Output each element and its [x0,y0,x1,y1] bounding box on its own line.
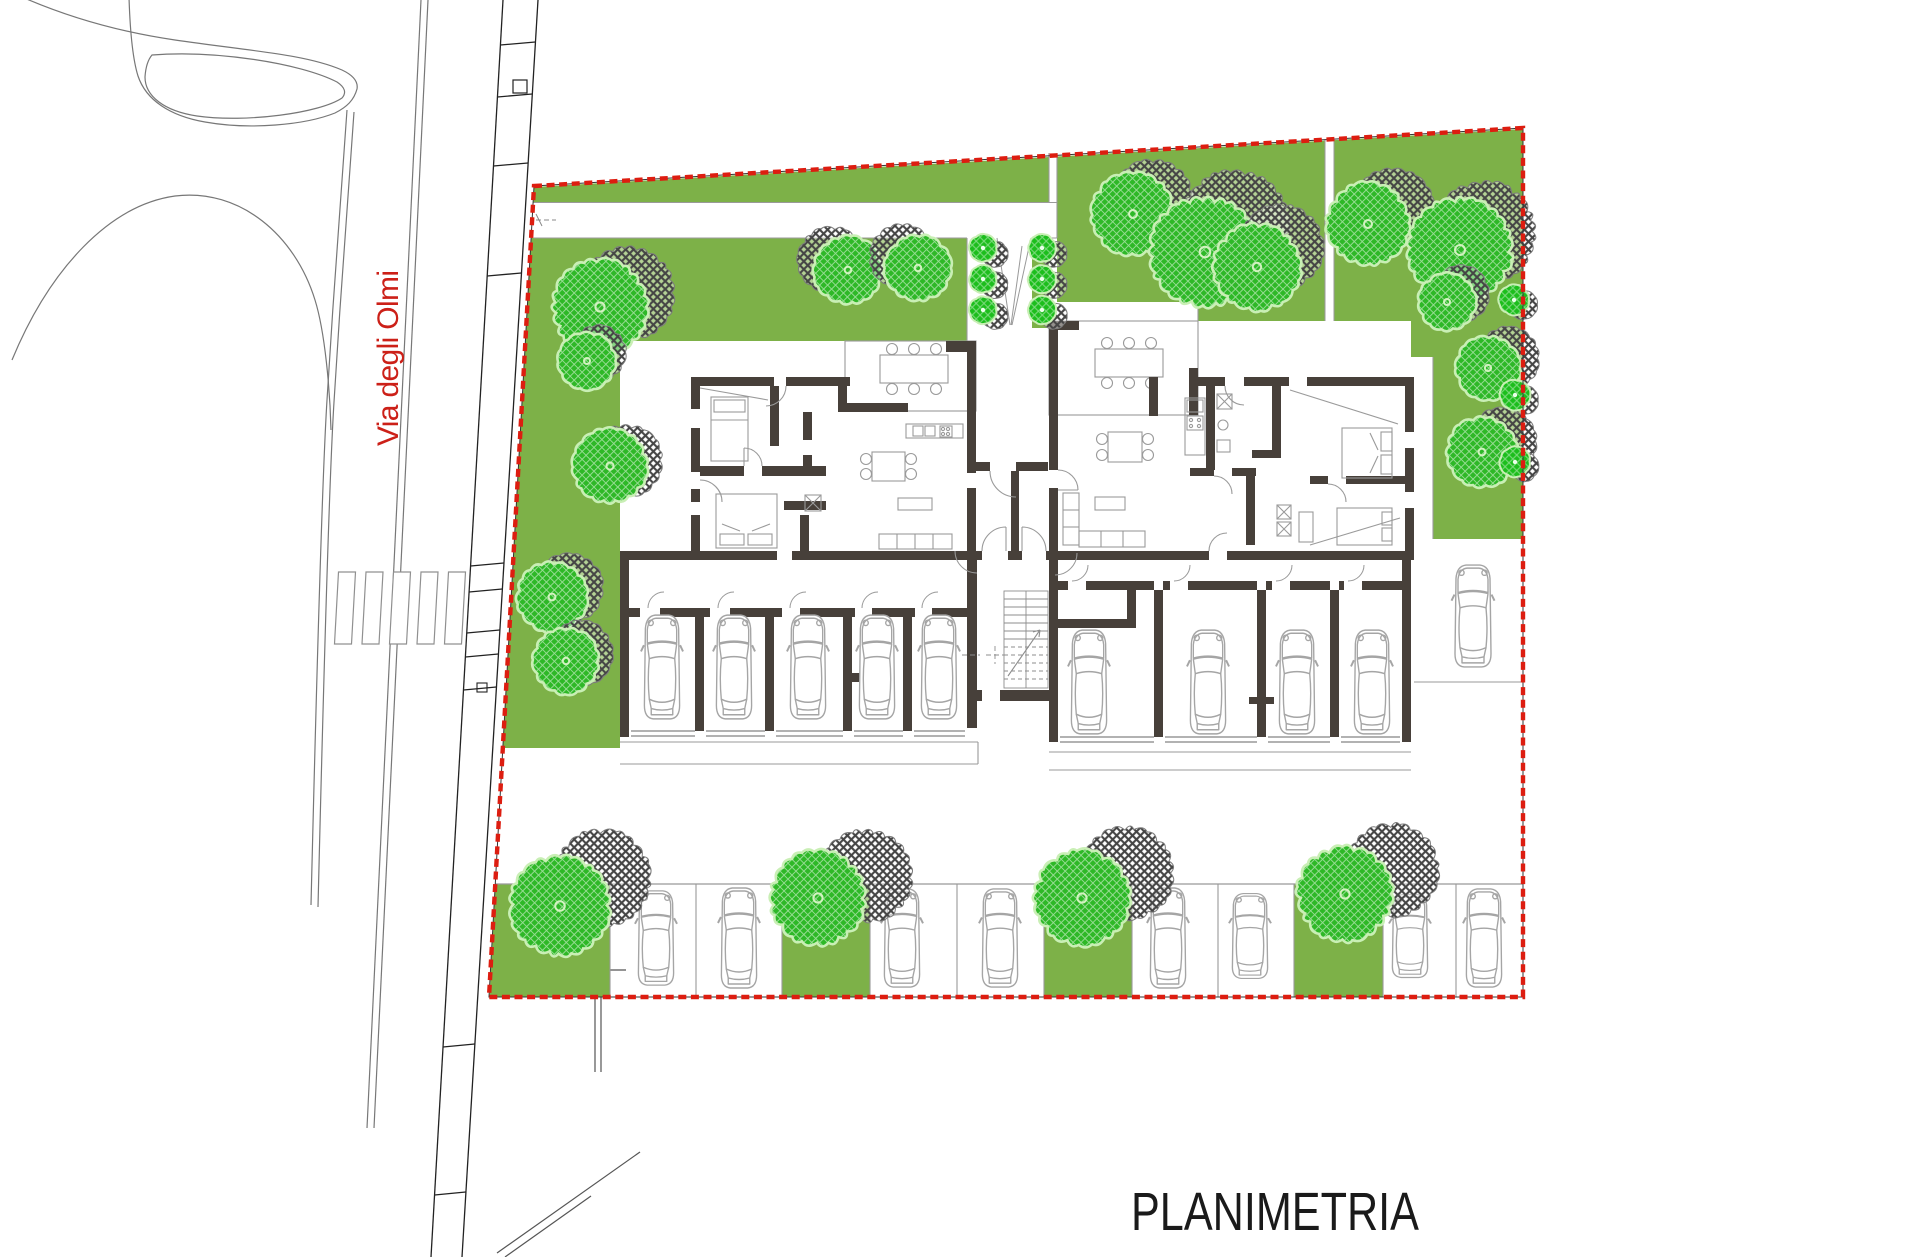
svg-text:Via degli Olmi: Via degli Olmi [372,270,405,446]
svg-text:PLANIMETRIA: PLANIMETRIA [1131,1182,1419,1242]
